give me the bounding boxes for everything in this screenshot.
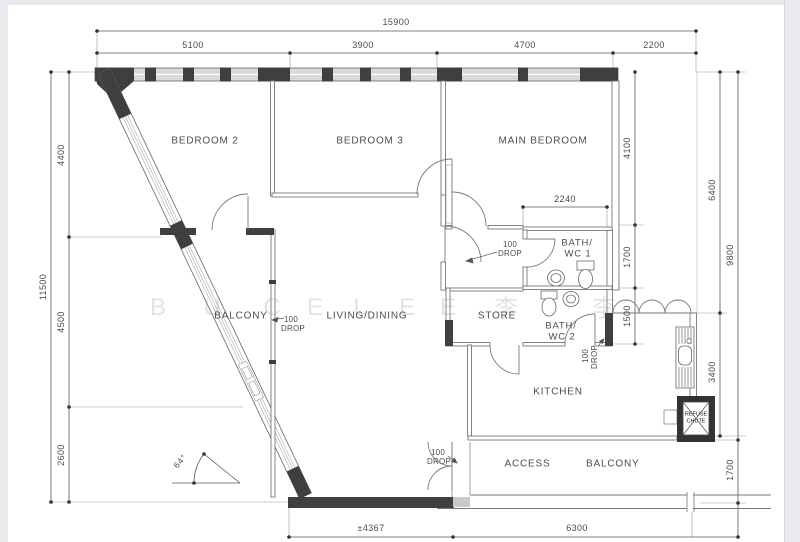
page-edge-top xyxy=(0,0,800,5)
dim-right-6400: 6400 xyxy=(707,179,717,201)
dim-right-9800: 9800 xyxy=(725,244,735,266)
room-label-balcony: BALCONY xyxy=(214,311,267,322)
dim-right-4100: 4100 xyxy=(622,137,632,159)
watermark: B xyxy=(150,294,166,322)
room-label-access-balcony: ACCESS BALCONY xyxy=(505,459,640,470)
dim-right-1700b: 1700 xyxy=(725,459,735,481)
drop-note-entrance-2: DROP xyxy=(427,458,451,467)
room-label-bath2: BATH/ xyxy=(545,321,576,332)
page-edge-left xyxy=(0,0,8,542)
watermark: E xyxy=(440,294,456,322)
watermark: 李 xyxy=(592,289,616,324)
door-arc-main-bedroom xyxy=(452,192,486,226)
toilet-cistern xyxy=(577,261,594,270)
floorplan-drawing xyxy=(0,0,800,542)
bottom-walls xyxy=(288,440,771,512)
room-label-bath2-2: WC 2 xyxy=(549,332,576,343)
drop-note-balcony-2: DROP xyxy=(281,325,305,334)
walls xyxy=(271,81,697,497)
folding-door-arc xyxy=(639,300,665,313)
door-arc-corridor xyxy=(445,226,481,262)
toilet-bowl xyxy=(579,270,593,289)
watermark: E xyxy=(307,294,323,322)
room-label-bedroom3: BEDROOM 3 xyxy=(336,136,403,147)
dim-top-seg2: 3900 xyxy=(352,40,374,50)
dim-right-3400: 3400 xyxy=(707,361,717,383)
kitchen-tap xyxy=(687,339,692,344)
kitchen-sink xyxy=(679,346,692,365)
dim-right-1500: 1500 xyxy=(622,305,632,327)
room-label-bath1-2: WC 1 xyxy=(565,249,592,260)
room-label-bedroom2: BEDROOM 2 xyxy=(171,136,238,147)
dim-bottom-4367: ±4367 xyxy=(358,523,385,533)
dim-top-seg1: 5100 xyxy=(182,40,204,50)
dim-left-seg3: 2600 xyxy=(56,444,66,466)
drop-note-bath1-2: DROP xyxy=(498,250,522,259)
dim-left-seg1: 4400 xyxy=(56,144,66,166)
dim-top-seg4: 2200 xyxy=(643,40,665,50)
service-box xyxy=(664,410,677,424)
door-arc-bath1 xyxy=(527,239,555,267)
room-label-living-dining: LIVING/DINING xyxy=(327,311,408,322)
refuse-chute-label-2: CHUTE xyxy=(687,419,706,425)
dim-bath-2240: 2240 xyxy=(554,194,576,204)
dim-bottom-6300: 6300 xyxy=(566,523,588,533)
floorplan-page: B U C E L E E 李 李 BEDROOM 2 BEDROOM 3 MA… xyxy=(0,0,800,542)
page-edge-right xyxy=(784,0,800,542)
room-label-kitchen: KITCHEN xyxy=(533,387,583,398)
room-label-main-bedroom: MAIN BEDROOM xyxy=(498,136,587,147)
top-window-wall xyxy=(95,68,618,100)
extension-lines xyxy=(51,31,746,537)
door-arc-entrance-lower xyxy=(428,466,452,490)
angled-window-wall xyxy=(98,68,311,498)
dim-left-total: 11500 xyxy=(38,274,48,300)
door-arc-bedroom2 xyxy=(212,194,248,230)
dim-right-1700: 1700 xyxy=(622,246,632,268)
drop-note-kitchen-2: DROP xyxy=(591,345,600,369)
folding-door-arc xyxy=(665,300,691,313)
room-label-store: STORE xyxy=(478,311,516,322)
dim-top-seg3: 4700 xyxy=(514,40,536,50)
refuse-chute-label: REFUSE xyxy=(685,412,707,418)
toilet-bowl xyxy=(542,298,556,316)
room-label-bath1: BATH/ xyxy=(561,238,592,249)
door-arc-kitchen xyxy=(490,345,519,374)
dim-top-total: 15900 xyxy=(382,17,409,27)
dim-left-seg2: 4500 xyxy=(56,311,66,333)
